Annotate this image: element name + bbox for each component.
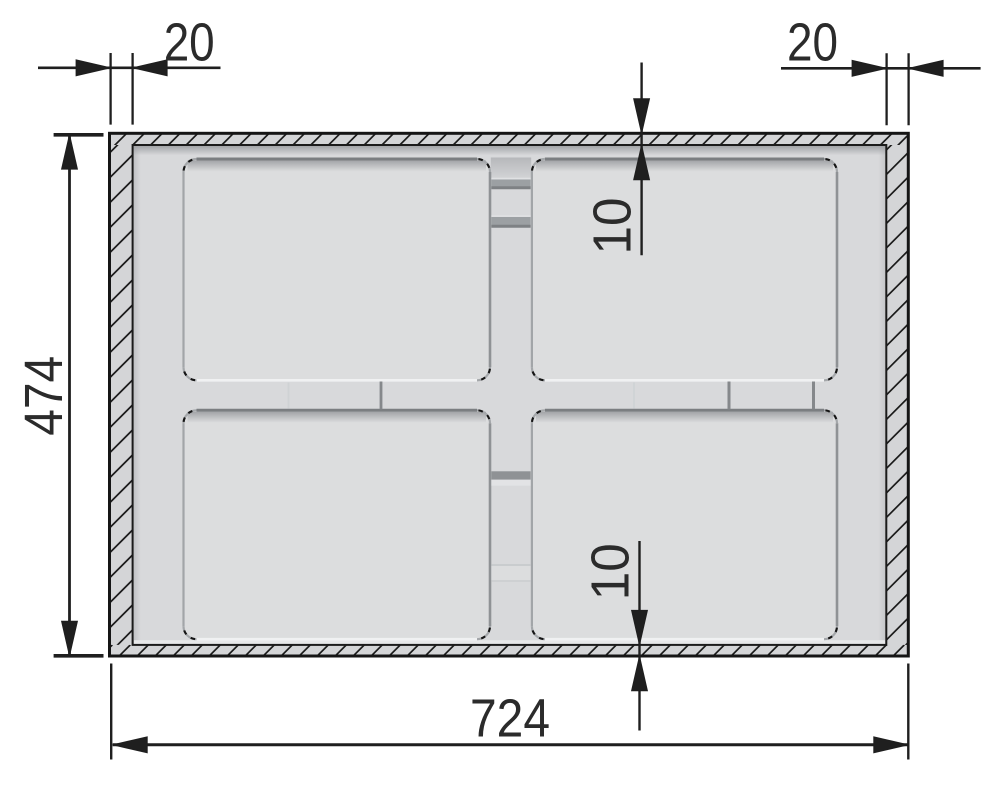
svg-text:10: 10 <box>580 543 640 600</box>
svg-text:724: 724 <box>470 689 550 749</box>
svg-text:474: 474 <box>14 356 74 436</box>
svg-text:10: 10 <box>582 198 642 255</box>
svg-text:20: 20 <box>787 12 838 72</box>
svg-text:20: 20 <box>164 12 215 72</box>
